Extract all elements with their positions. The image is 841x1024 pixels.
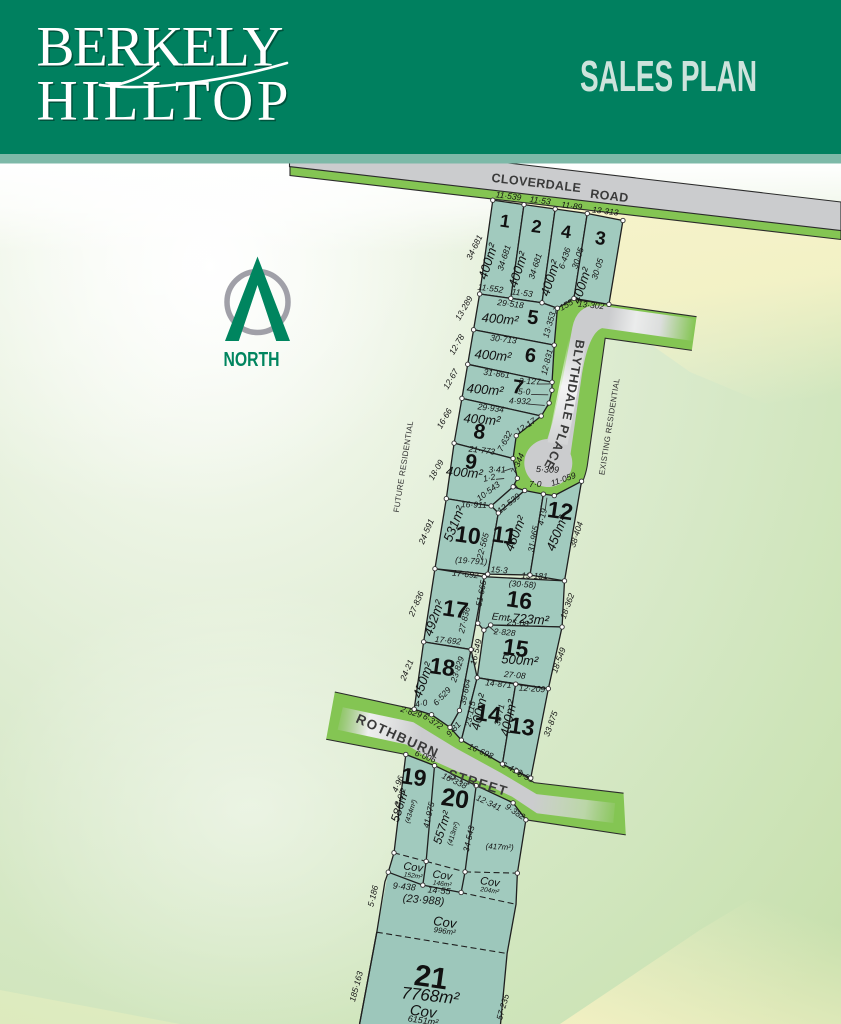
svg-text:7·0: 7·0: [529, 479, 542, 489]
svg-text:500m²: 500m²: [501, 651, 539, 669]
svg-text:4·932: 4·932: [509, 396, 531, 407]
svg-text:SALES PLAN: SALES PLAN: [580, 52, 757, 101]
svg-text:HILLTOP: HILLTOP: [37, 70, 289, 133]
svg-text:12·209: 12·209: [518, 683, 545, 695]
svg-text:15·3: 15·3: [490, 564, 508, 575]
svg-text:19: 19: [399, 762, 428, 791]
svg-text:9·438: 9·438: [392, 881, 416, 893]
svg-text:NORTH: NORTH: [224, 349, 280, 371]
svg-text:16·911: 16·911: [461, 499, 487, 510]
svg-text:3·127: 3·127: [519, 376, 541, 387]
svg-text:(30·58): (30·58): [508, 578, 536, 590]
svg-text:20: 20: [439, 783, 470, 815]
svg-text:(417m²): (417m²): [485, 842, 514, 852]
svg-text:5·309: 5·309: [536, 464, 559, 475]
